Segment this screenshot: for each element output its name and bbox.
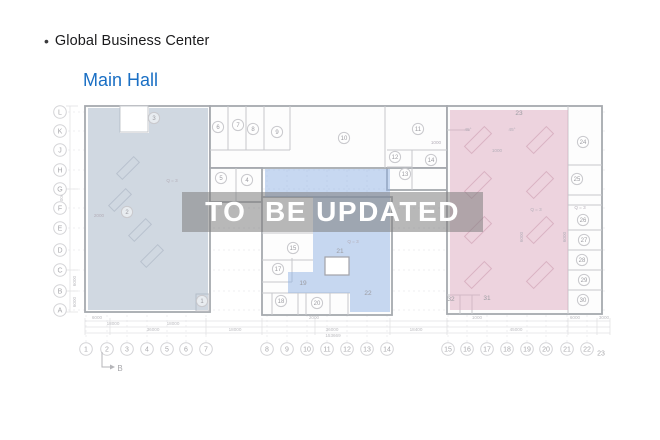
svg-text:4: 4	[145, 346, 149, 353]
svg-text:18400: 18400	[410, 327, 423, 332]
svg-text:15: 15	[290, 246, 297, 252]
svg-text:Q = 3: Q = 3	[166, 178, 178, 183]
svg-text:2000: 2000	[94, 213, 105, 218]
svg-text:12: 12	[343, 346, 351, 353]
svg-text:45°: 45°	[465, 127, 472, 132]
svg-text:13: 13	[363, 346, 371, 353]
svg-text:9: 9	[285, 346, 289, 353]
svg-text:17: 17	[275, 267, 282, 273]
svg-text:45000: 45000	[510, 327, 523, 332]
svg-text:22: 22	[583, 346, 591, 353]
svg-text:10: 10	[303, 346, 311, 353]
svg-text:20: 20	[542, 346, 550, 353]
svg-text:A: A	[58, 307, 63, 314]
svg-text:14: 14	[383, 346, 391, 353]
svg-text:Q = 3: Q = 3	[574, 205, 586, 210]
svg-text:13: 13	[402, 172, 409, 178]
svg-text:22: 22	[364, 290, 372, 297]
svg-text:3: 3	[125, 346, 129, 353]
svg-text:18000: 18000	[167, 321, 180, 326]
svg-text:8: 8	[265, 346, 269, 353]
slide: • Global Business Center Main Hall 60001…	[0, 0, 660, 440]
svg-text:6000: 6000	[72, 275, 77, 286]
svg-text:18: 18	[503, 346, 511, 353]
svg-text:H: H	[57, 167, 62, 174]
svg-text:6000: 6000	[570, 315, 581, 320]
svg-text:L: L	[58, 109, 62, 116]
svg-text:10: 10	[341, 136, 348, 142]
status-overlay: TO BE UPDATED	[182, 192, 483, 232]
svg-text:E: E	[58, 225, 63, 232]
svg-text:24: 24	[580, 140, 587, 146]
svg-text:18000: 18000	[229, 327, 242, 332]
grid-row-markers: LKJHGFEDCBA	[54, 106, 67, 317]
svg-text:12: 12	[392, 155, 399, 161]
svg-text:6000: 6000	[92, 315, 103, 320]
svg-text:28: 28	[579, 258, 586, 264]
svg-text:19: 19	[523, 346, 531, 353]
svg-text:2: 2	[105, 346, 109, 353]
status-overlay-text: TO BE UPDATED	[205, 196, 460, 228]
svg-text:Q = 3: Q = 3	[530, 207, 542, 212]
svg-text:16: 16	[463, 346, 471, 353]
svg-text:1000: 1000	[472, 315, 483, 320]
grid-col-markers: 1234567891011121314151617181920212223	[80, 343, 605, 358]
svg-text:3000: 3000	[599, 315, 610, 320]
svg-text:32: 32	[447, 296, 455, 303]
svg-text:J: J	[58, 147, 62, 154]
svg-text:153669: 153669	[325, 333, 341, 338]
svg-text:6000: 6000	[72, 296, 77, 307]
svg-text:26: 26	[580, 218, 587, 224]
svg-text:15: 15	[444, 346, 452, 353]
svg-text:C: C	[57, 267, 62, 274]
svg-text:27: 27	[581, 238, 588, 244]
svg-text:21: 21	[336, 248, 344, 255]
svg-text:1000: 1000	[492, 148, 503, 153]
svg-text:7: 7	[204, 346, 208, 353]
svg-text:G: G	[57, 186, 62, 193]
svg-text:6: 6	[184, 346, 188, 353]
svg-text:Q = 3: Q = 3	[347, 239, 359, 244]
svg-text:D: D	[57, 247, 62, 254]
svg-text:30: 30	[580, 298, 587, 304]
svg-text:19: 19	[299, 280, 307, 287]
svg-text:36000: 36000	[326, 327, 339, 332]
svg-text:45°: 45°	[509, 127, 516, 132]
svg-text:25: 25	[574, 177, 581, 183]
svg-text:5: 5	[165, 346, 169, 353]
svg-text:K: K	[58, 128, 63, 135]
svg-text:20: 20	[314, 301, 321, 307]
svg-text:29: 29	[581, 278, 588, 284]
svg-text:18000: 18000	[107, 321, 120, 326]
svg-text:1000: 1000	[431, 140, 442, 145]
svg-text:21: 21	[563, 346, 571, 353]
svg-text:31: 31	[483, 295, 491, 302]
svg-text:17: 17	[483, 346, 491, 353]
svg-text:18: 18	[278, 299, 285, 305]
svg-text:6000: 6000	[562, 231, 567, 242]
svg-text:23: 23	[597, 350, 605, 357]
svg-text:F: F	[58, 205, 62, 212]
svg-text:6000: 6000	[519, 231, 524, 242]
svg-text:B: B	[117, 364, 122, 373]
svg-text:23: 23	[515, 110, 523, 117]
svg-text:2000: 2000	[309, 315, 320, 320]
svg-text:36000: 36000	[147, 327, 160, 332]
svg-text:B: B	[58, 288, 63, 295]
svg-text:14: 14	[428, 158, 435, 164]
svg-text:1: 1	[84, 346, 88, 353]
svg-text:11: 11	[415, 127, 422, 133]
svg-text:11: 11	[323, 346, 330, 353]
